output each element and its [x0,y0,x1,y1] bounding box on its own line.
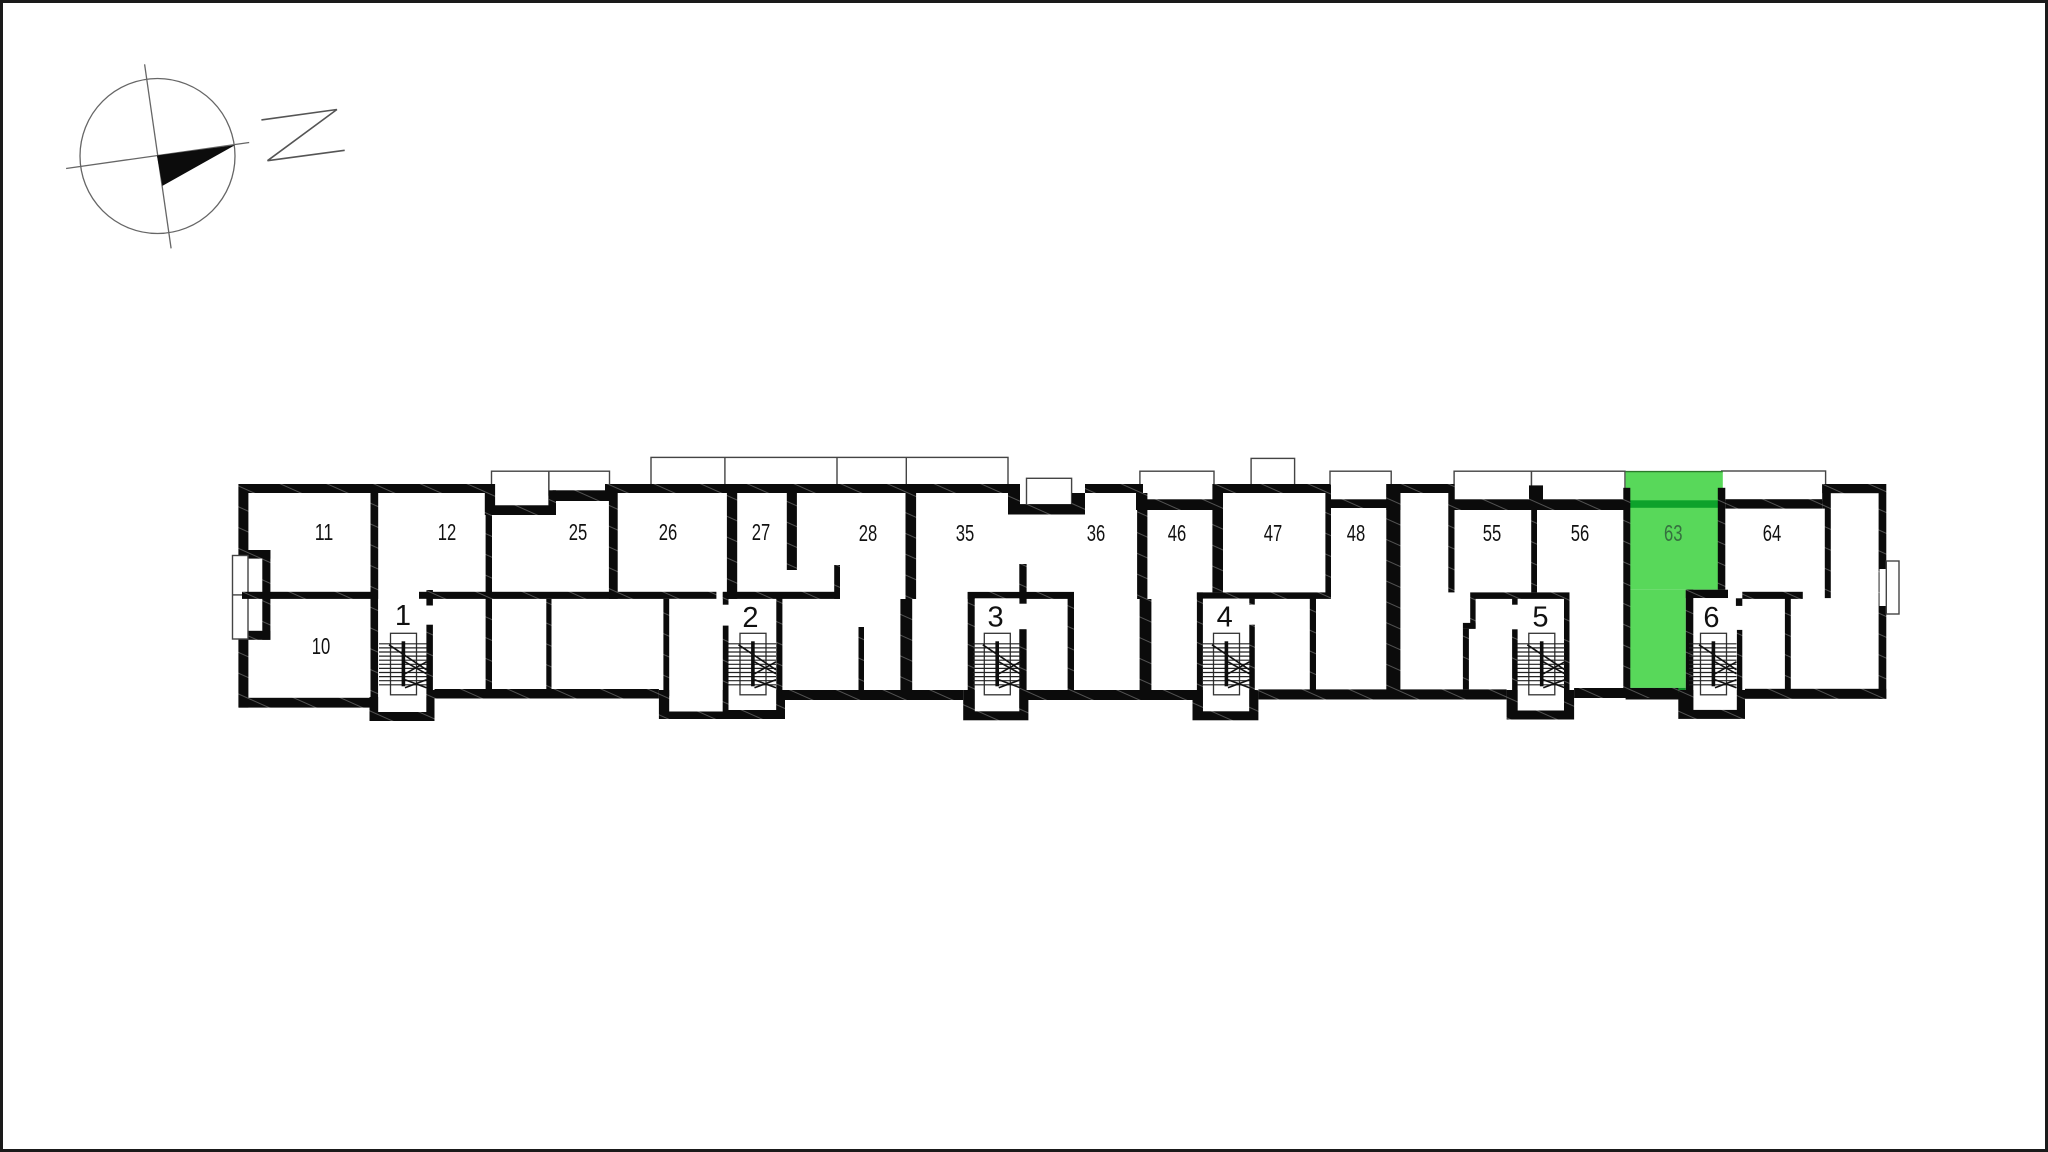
svg-text:64: 64 [1763,520,1782,546]
svg-text:2: 2 [742,602,758,634]
svg-text:47: 47 [1264,520,1283,546]
svg-text:36: 36 [1087,520,1106,546]
svg-text:26: 26 [659,519,678,545]
svg-text:35: 35 [956,520,975,546]
svg-text:27: 27 [752,519,771,545]
svg-text:6: 6 [1703,602,1719,634]
svg-text:12: 12 [438,519,457,545]
svg-text:46: 46 [1168,520,1187,546]
svg-text:3: 3 [988,602,1004,634]
svg-text:63: 63 [1664,520,1683,546]
svg-text:11: 11 [315,519,334,545]
svg-text:56: 56 [1571,520,1590,546]
svg-text:48: 48 [1347,520,1366,546]
svg-text:10: 10 [312,633,331,659]
svg-text:5: 5 [1532,602,1548,634]
svg-text:55: 55 [1483,520,1502,546]
svg-text:1: 1 [395,600,411,632]
svg-text:28: 28 [859,520,878,546]
svg-text:4: 4 [1217,602,1233,634]
svg-text:25: 25 [569,519,588,545]
